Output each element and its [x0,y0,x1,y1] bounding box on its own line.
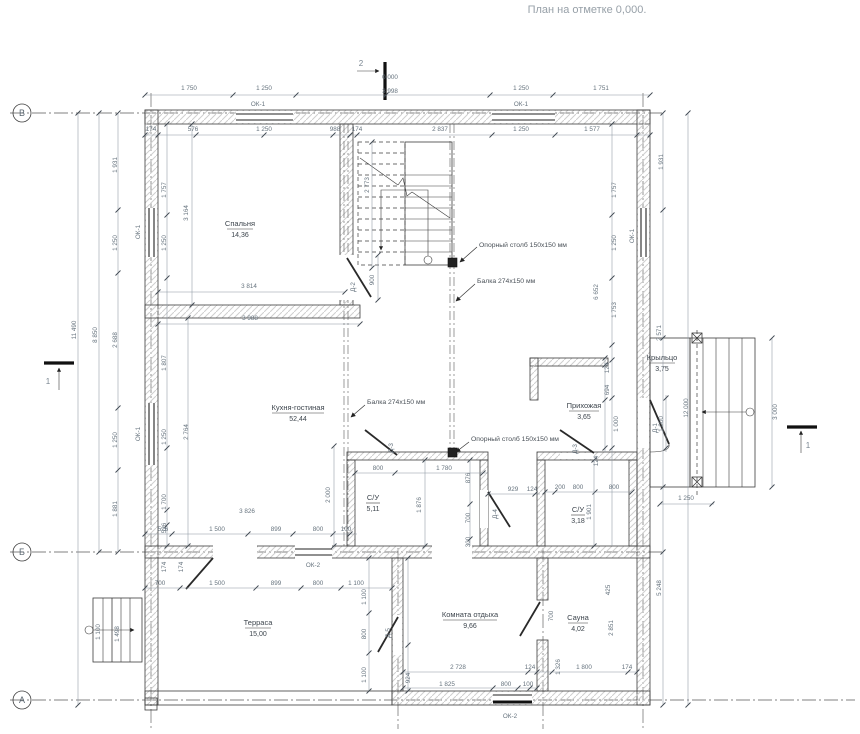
svg-text:Комната отдыха: Комната отдыха [442,610,499,619]
dim-text: 124 [525,664,536,671]
elevation-mark-value: 0.000 [382,74,398,81]
dim-text: 526 [158,526,169,533]
dim-text: 1 100 [361,667,368,683]
annotations: Опорный столб 150х150 мм Балка 274х150 м… [351,241,567,452]
dim-text: 174 [352,126,363,133]
dim-text: 1 800 [576,664,592,671]
svg-text:52,44: 52,44 [289,416,307,423]
dim-text: 425 [605,584,612,595]
dim-text: 1 876 [416,497,423,513]
svg-text:Кухня-гостиная: Кухня-гостиная [271,403,324,412]
room-hallway: Прихожая3,65 [567,401,602,421]
dim-text: 1 931 [112,157,119,173]
dim-text: 899 [271,526,282,533]
dim-text: 700 [548,610,555,621]
window-label: ОК-1 [514,101,529,108]
dim-text: 1 250 [112,432,119,448]
window-label: ОК-2 [306,562,321,569]
room-labels: Спальня14,36 Кухня-гостиная52,44 С/У5,11… [225,219,677,638]
dim-text: 100 [341,526,352,533]
door-label: Д-3 [572,444,579,454]
room-porch: Крыльцо3,75 [647,353,678,373]
beam-annotation-1: Балка 274х150 мм [477,278,536,285]
dim-text: 1 250 [513,85,529,92]
dim-text: 3 000 [772,404,779,420]
dim-text: 100 [523,681,534,688]
svg-text:15,00: 15,00 [249,631,267,638]
dim-text: 1 250 [678,495,694,502]
dim-text: 1 498 [114,626,121,642]
dim-text: 899 [271,580,282,587]
svg-text:5,11: 5,11 [366,506,379,513]
dim-text: 1 000 [613,416,620,432]
room-sauna: Сауна4,02 [567,613,589,633]
door-label: Д-1 [652,423,659,433]
dim-text: 2 851 [608,620,615,636]
door-label: Д-2 [350,282,357,292]
svg-text:Крыльцо: Крыльцо [647,353,678,362]
svg-text:Сауна: Сауна [567,613,589,622]
dim-text: 11 490 [71,320,78,339]
dim-text: 1 250 [112,235,119,251]
dim-text: 2 000 [325,487,332,503]
support-posts [448,258,457,457]
dim-text: 2 571 [656,325,663,341]
axis-bubble-v: В [19,108,25,118]
dim-text: 1 700 [161,494,168,510]
room-bedroom: Спальня14,36 [225,219,255,239]
dim-text: 700 [155,580,166,587]
dim-text: 1 326 [555,659,562,675]
dim-text: 2 728 [450,664,466,671]
window-label: ОК-1 [135,224,142,239]
window-ok1-left-upper [146,208,157,257]
dim-text: 800 [573,484,584,491]
svg-text:9,66: 9,66 [463,623,477,630]
dim-text: 1 250 [161,429,168,445]
dim-text: 1 751 [593,85,609,92]
svg-text:С/У: С/У [572,505,585,514]
svg-text:4,02: 4,02 [571,626,585,633]
dim-text: 1 250 [611,235,618,251]
dim-text: 174 [146,126,157,133]
dim-text: 800 [501,681,512,688]
svg-text:Прихожая: Прихожая [567,401,602,410]
dim-text: 200 [555,484,566,491]
dim-text: 1 250 [256,126,272,133]
page-title: План на отметке 0,000. [528,4,647,16]
svg-text:3,65: 3,65 [577,414,591,421]
dim-text: 1 901 [586,504,593,520]
window-label: ОК-1 [135,426,142,441]
room-kitchen-living: Кухня-гостиная52,44 [271,403,324,423]
dim-text: 2 764 [183,424,190,440]
dim-text: 800 [313,580,324,587]
window-ok1-top-right [492,111,555,123]
dim-text: 694 [604,384,611,395]
beam-annotation-2: Балка 274х150 мм [367,399,426,406]
room-rest-room: Комната отдыха9,66 [442,610,499,630]
svg-text:3,18: 3,18 [571,518,585,525]
window-label: ОК-1 [629,228,636,243]
dim-text: 1 500 [209,526,225,533]
dim-text: 124 [527,486,538,493]
room-terrace: Терраса15,00 [244,618,274,638]
dim-text: 1 931 [658,154,665,170]
window-ok2-kitchen [295,545,332,559]
dim-text: 3 998 [382,88,398,95]
dim-text: 3 988 [242,315,258,322]
dim-text: 800 [361,628,368,639]
svg-text:Терраса: Терраса [244,618,274,627]
dim-text: 1 577 [584,126,600,133]
dim-text: 1 881 [112,501,119,517]
svg-text:Спальня: Спальня [225,219,255,228]
post-annotation-1: Опорный столб 150х150 мм [479,241,567,249]
dim-text: 6 652 [593,284,600,300]
window-label: ОК-2 [503,713,518,720]
dim-text: 1 807 [161,355,168,371]
dim-text: 1 780 [436,465,452,472]
dim-text: 174 [622,664,633,671]
dim-text: 700 [465,512,472,523]
section-2-label: 2 [359,59,364,68]
svg-text:С/У: С/У [367,493,380,502]
post-annotation-2: Опорный столб 150х150 мм [471,435,559,443]
dim-text: 2 688 [112,332,119,348]
room-bathroom-1: С/У5,11 [366,493,380,513]
dim-text: 1 500 [209,580,225,587]
dim-text: 3 826 [239,508,255,515]
dim-text: 1 250 [256,85,272,92]
dim-text: 174 [178,561,185,572]
window-ok1-top-left [236,111,293,123]
dim-text: 900 [369,274,376,285]
door-label: Д-3 [388,443,395,453]
dim-text: 1 000 [658,416,665,432]
dim-text: 12 000 [683,398,690,418]
dim-text: 1 250 [513,126,529,133]
window-ok1-right [638,208,649,257]
axis-bubble-a: А [19,695,25,705]
dim-text: 800 [313,526,324,533]
floor-plan-drawing: План на отметке 0,000. [0,0,860,734]
dim-text: 8 850 [92,327,99,343]
dim-text: 2 773 [364,177,371,193]
dim-text: 576 [188,126,199,133]
dim-text: 924 [405,672,412,683]
dim-text: 2 837 [432,126,448,133]
axis-bubbles: В Б А [13,104,31,709]
door-label: Д-5 [385,628,392,638]
door-label: Д-4 [492,509,499,519]
window-ok2-bottom [493,692,532,704]
axis-bubble-b: Б [19,547,25,557]
dimension-texts: 1 7501 2503 9981 2501 7511745761 2509881… [71,74,779,720]
beam-axes [344,124,454,546]
dim-text: 1 757 [161,182,168,198]
window-label: ОК-1 [251,101,266,108]
svg-text:3,75: 3,75 [655,366,669,373]
window-ok1-left-lower [146,403,157,465]
dim-text: 800 [609,484,620,491]
dim-text: 3 814 [241,283,257,290]
grid-axes [10,93,855,729]
dim-text: 876 [465,472,472,483]
dim-text: 800 [373,465,384,472]
dim-text: 1 250 [161,235,168,251]
section-1-label-right: 1 [806,441,811,450]
dim-text: 1 753 [611,302,618,318]
dim-text: 124 [593,455,600,466]
dim-text: 5 248 [656,580,663,596]
room-bathroom-2: С/У3,18 [571,505,585,525]
dim-text: 1 825 [439,681,455,688]
dim-text: 1 100 [95,624,102,640]
floor-plan-page: План на отметке 0,000. [0,0,860,734]
dim-text: 3 164 [183,205,190,221]
section-1-label-left: 1 [46,377,51,386]
dim-text: 300 [465,536,472,547]
dim-text: 1 757 [611,182,618,198]
svg-text:14,36: 14,36 [231,232,249,239]
dim-text: 1 100 [348,580,364,587]
dim-text: 1 100 [361,589,368,605]
dim-text: 124 [604,362,611,373]
door-d4-bathroom [480,490,510,528]
dim-text: 929 [508,486,519,493]
dim-text: 174 [161,561,168,572]
dim-text: 1 750 [181,85,197,92]
door-sauna [520,602,540,636]
dim-text: 988 [330,126,341,133]
